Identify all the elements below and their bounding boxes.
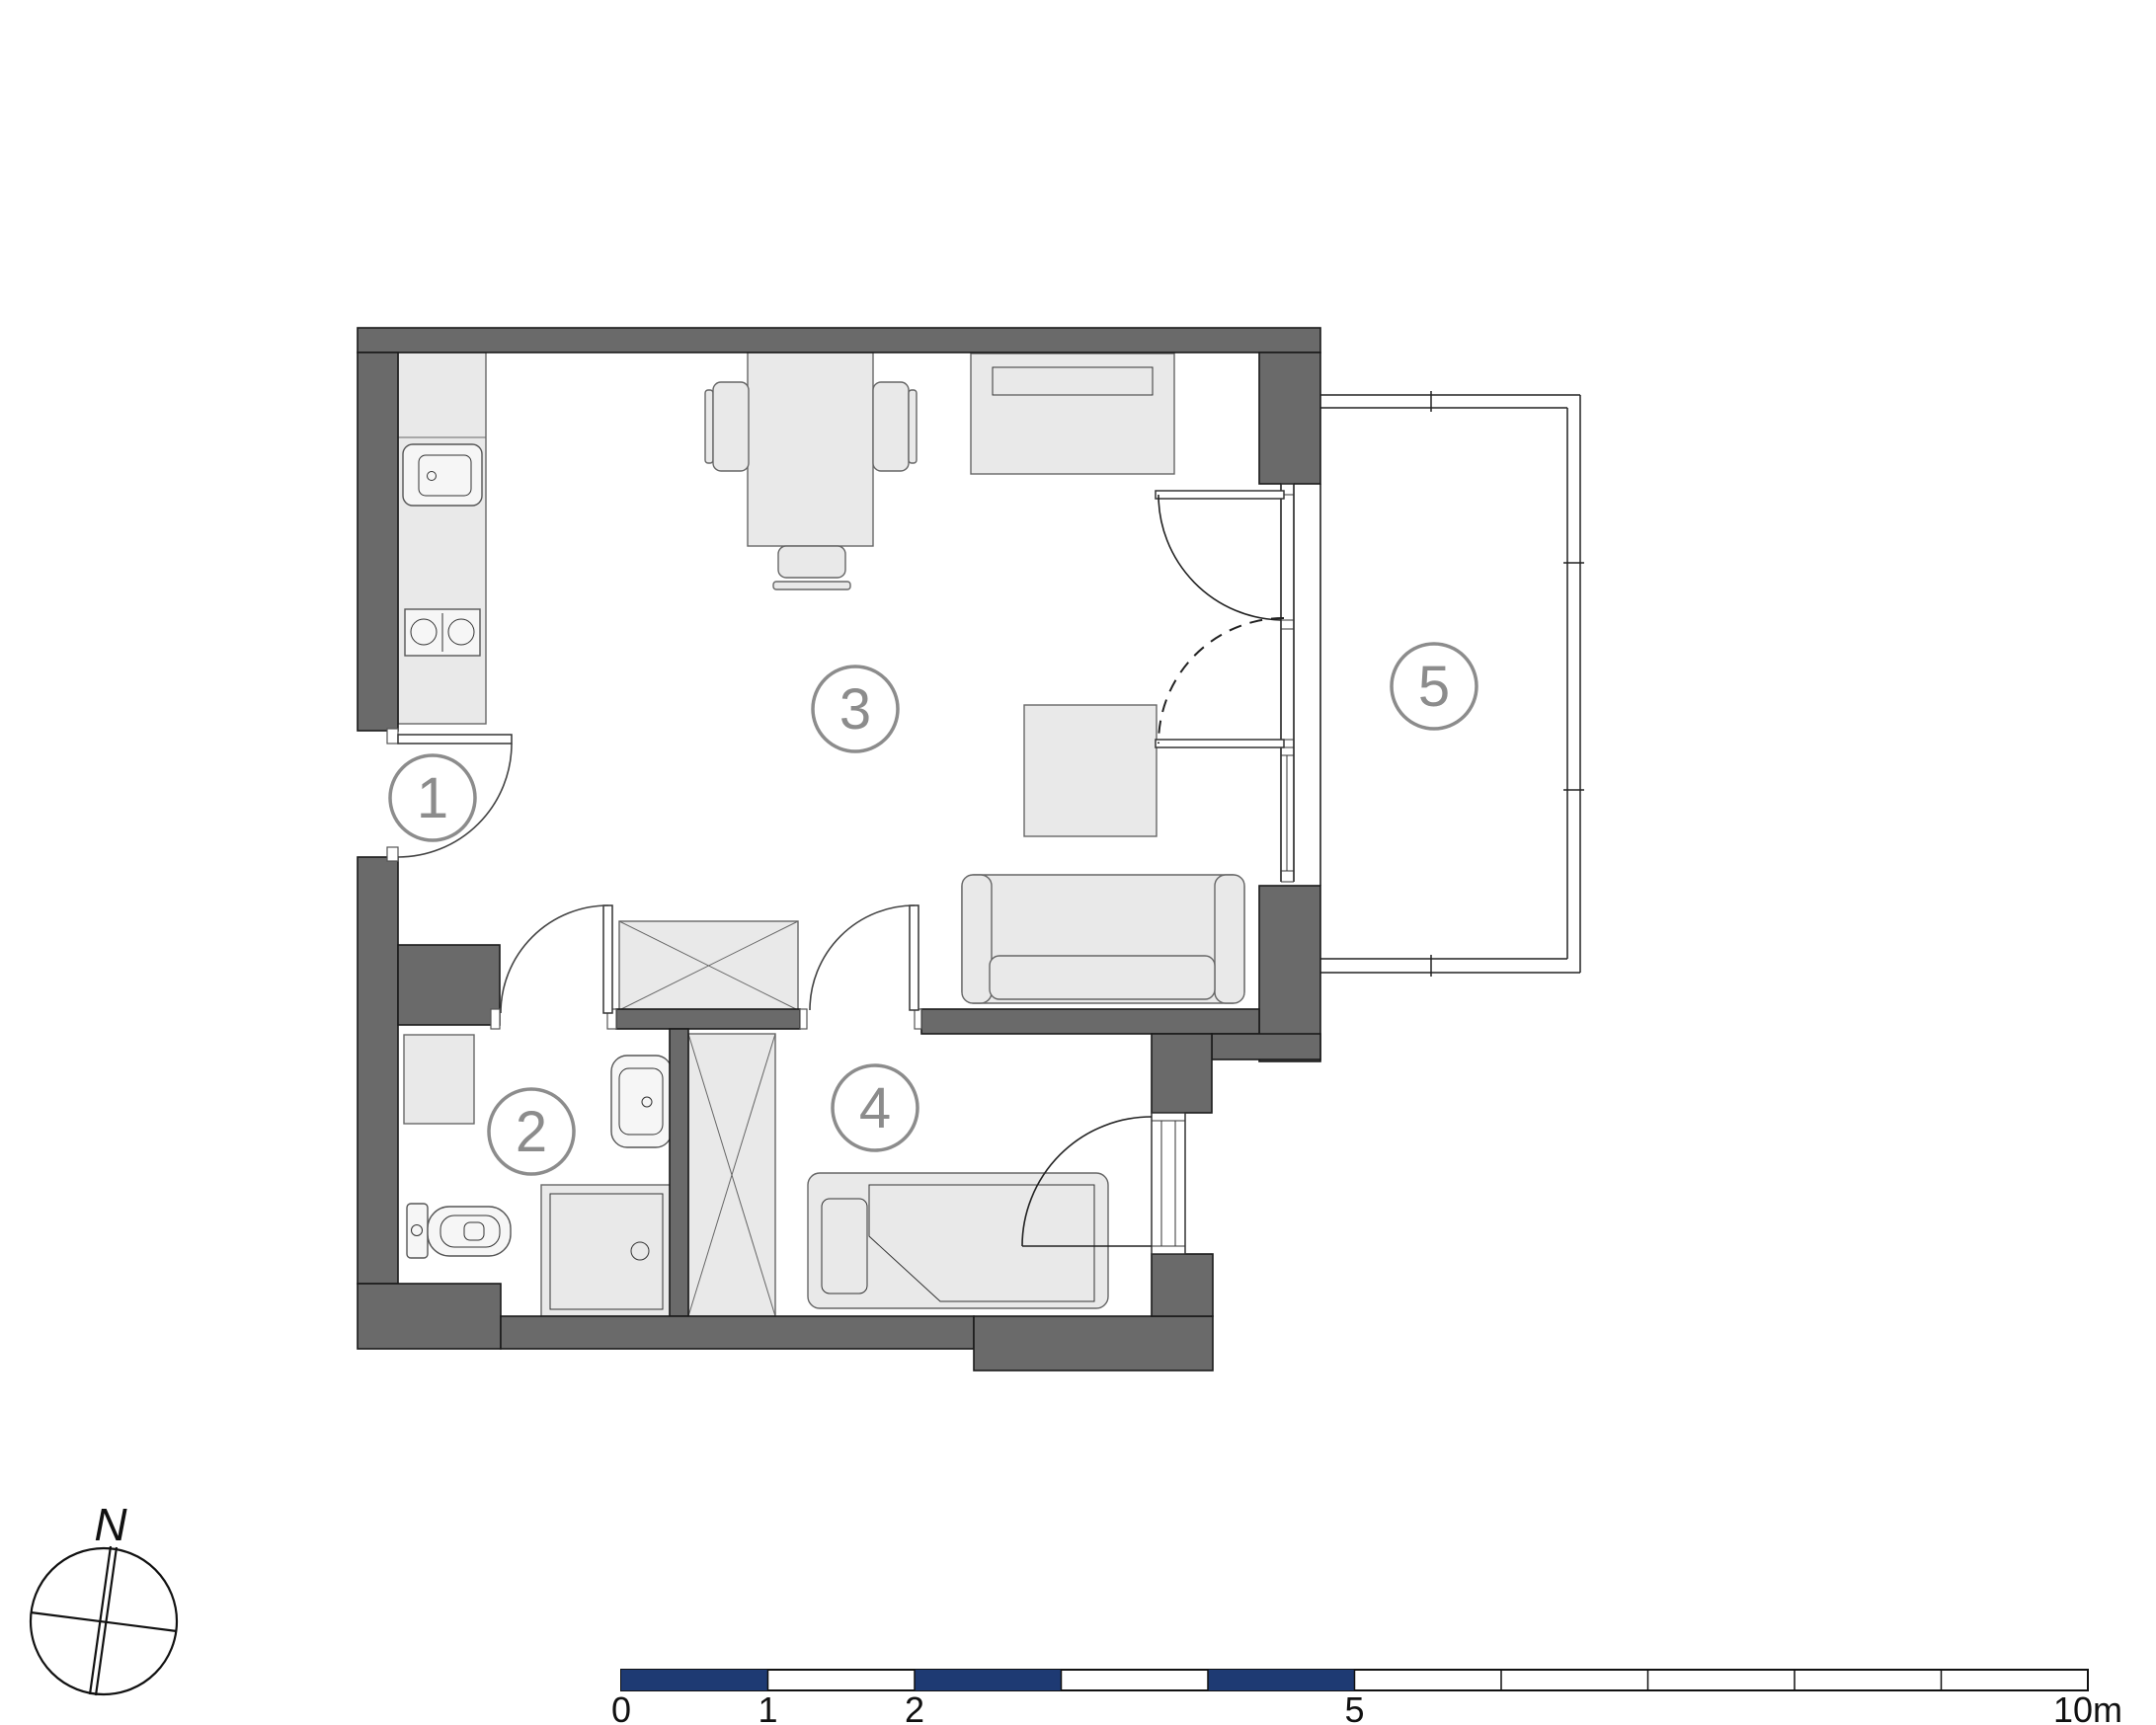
bedroom-door: [810, 905, 918, 1010]
kitchen-sink-icon: [403, 444, 482, 506]
floor-plan-drawing: 1 2 3 4 5 N: [0, 0, 2156, 1725]
room-number: 1: [417, 766, 448, 830]
wall-pier-top-right: [1259, 353, 1320, 484]
scale-bar: 0 1 2 5 10m: [611, 1670, 2122, 1725]
entry-door: [398, 735, 512, 857]
room-number: 4: [859, 1076, 891, 1140]
room-number: 3: [839, 677, 871, 742]
wall-hall-southwest-block: [398, 945, 500, 1025]
wall-bedroom-ne-pier: [1152, 1034, 1212, 1113]
room-label-5: 5: [1392, 644, 1477, 729]
scale-label-10m: 10m: [2053, 1689, 2122, 1725]
hall-cabinet: [619, 921, 798, 1010]
scale-segment-filled: [915, 1670, 1062, 1690]
balcony-railing: [1320, 391, 1584, 977]
wall-bottom-right: [974, 1316, 1213, 1371]
wall-below-bedroom-window: [1152, 1254, 1213, 1316]
furniture-layer: [398, 353, 1244, 1316]
wall-bath-bedroom-partition: [670, 1029, 688, 1316]
scale-label-1: 1: [758, 1689, 777, 1725]
scale-label-5: 5: [1344, 1689, 1364, 1725]
washing-machine: [404, 1035, 474, 1124]
wall-bottom-left: [358, 1284, 501, 1349]
north-label: N: [94, 1499, 127, 1550]
dining-chair-left: [705, 382, 749, 471]
floor-plan-page: 1 2 3 4 5 N: [0, 0, 2156, 1725]
balcony-door: [1156, 491, 1284, 747]
kitchen-counter: [398, 353, 486, 724]
bed: [808, 1173, 1108, 1308]
dining-table-set: [705, 353, 917, 589]
scale-label-2: 2: [905, 1689, 924, 1725]
scale-segment-filled: [1208, 1670, 1355, 1690]
room-label-4: 4: [833, 1065, 918, 1150]
scale-label-0: 0: [611, 1689, 631, 1725]
toilet-icon: [407, 1204, 511, 1258]
room-label-1: 1: [390, 755, 475, 840]
shower-tray-icon: [541, 1185, 672, 1316]
cooktop-icon: [405, 609, 480, 656]
wall-hall-mid: [616, 1009, 800, 1029]
bathroom-door: [501, 905, 612, 1013]
coffee-table: [1024, 705, 1157, 836]
wall-bottom-mid: [501, 1316, 974, 1349]
wall-left-lower: [358, 857, 398, 1284]
north-compass: N: [31, 1499, 177, 1695]
sideboard: [971, 353, 1174, 474]
living-window-wall: [1156, 484, 1320, 886]
wash-basin-icon: [611, 1056, 672, 1147]
dining-chair-right: [873, 382, 917, 471]
dining-table: [748, 353, 873, 546]
scale-segment-filled: [621, 1670, 768, 1690]
room-label-3: 3: [813, 666, 898, 751]
wall-living-bedroom: [921, 1009, 1259, 1034]
bedroom-wardrobe: [688, 1034, 775, 1316]
room-number: 2: [516, 1100, 547, 1164]
room-number: 5: [1418, 655, 1450, 719]
compass-crossline: [31, 1612, 177, 1631]
room-label-2: 2: [489, 1089, 574, 1174]
wall-top: [358, 328, 1320, 353]
wall-left-upper: [358, 353, 398, 731]
sofa: [962, 875, 1244, 1003]
dining-chair-bottom: [773, 546, 850, 589]
wall-arm-east: [1212, 1034, 1320, 1059]
